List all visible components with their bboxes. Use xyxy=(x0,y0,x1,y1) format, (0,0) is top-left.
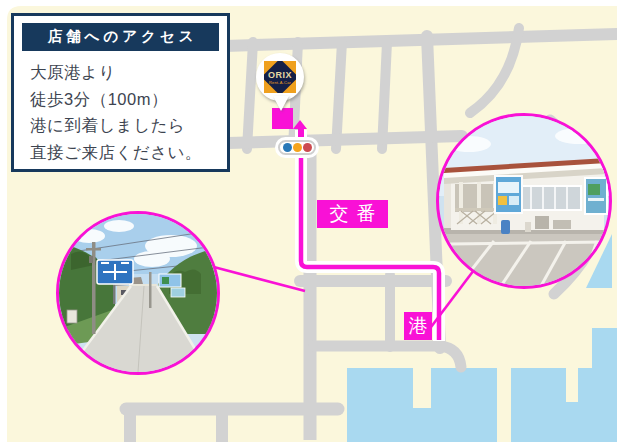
store-location-square xyxy=(272,108,293,129)
orix-brand-text: ORIX xyxy=(264,70,296,80)
photo-circle-street xyxy=(56,211,220,375)
info-box-title: 店舗へのアクセス xyxy=(22,23,219,51)
police-box-label: 交番 xyxy=(317,200,388,228)
port-label: 港 xyxy=(404,312,432,340)
info-line: 大原港より xyxy=(30,59,227,86)
traffic-light-icon xyxy=(275,137,319,158)
route-arrow-icon xyxy=(293,120,308,138)
info-line: 徒歩3分（100m） xyxy=(30,86,227,113)
port-building-photo xyxy=(439,116,609,286)
orix-logo: ORIX Rent-A-Car xyxy=(264,61,296,93)
info-line: 港に到着しましたら xyxy=(30,112,227,139)
traffic-light-red-dot xyxy=(303,143,312,152)
street-view-photo xyxy=(59,214,217,372)
traffic-light-blue-dot xyxy=(283,143,292,152)
info-line: 直接ご来店ください。 xyxy=(30,139,227,166)
access-map: 店舗へのアクセス 大原港より 徒歩3分（100m） 港に到着しましたら 直接ご来… xyxy=(0,0,617,442)
store-marker-balloon: ORIX Rent-A-Car xyxy=(256,53,304,101)
traffic-light-orange-dot xyxy=(293,143,302,152)
info-box-text: 大原港より 徒歩3分（100m） 港に到着しましたら 直接ご来店ください。 xyxy=(14,57,227,165)
balloon-tail xyxy=(273,96,289,111)
photo-circle-port-building xyxy=(436,113,612,289)
info-box: 店舗へのアクセス 大原港より 徒歩3分（100m） 港に到着しましたら 直接ご来… xyxy=(11,13,230,172)
orix-sub-text: Rent-A-Car xyxy=(264,80,296,85)
